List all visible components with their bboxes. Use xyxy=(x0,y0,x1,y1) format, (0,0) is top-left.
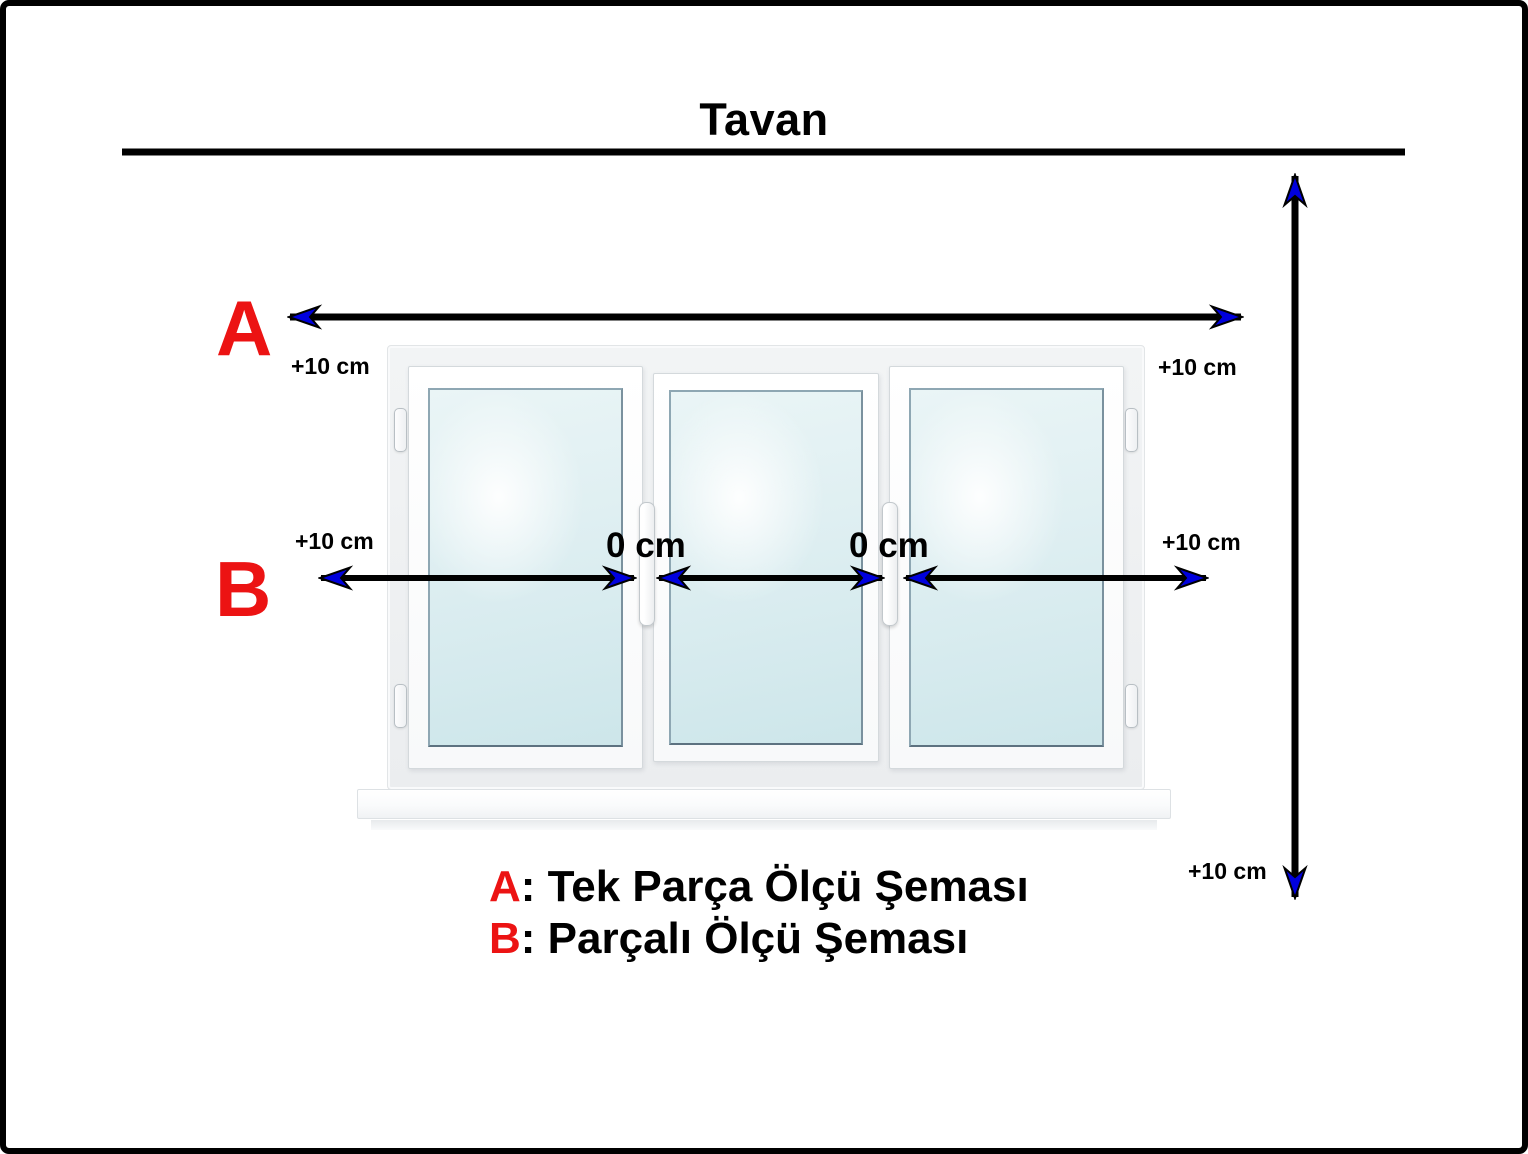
schema-b-label: B xyxy=(215,550,271,628)
offset-a-left: +10 cm xyxy=(291,355,370,378)
measurement-diagram: Tavan xyxy=(0,0,1528,1154)
offset-a-right: +10 cm xyxy=(1158,356,1237,379)
offset-b-right: +10 cm xyxy=(1162,531,1241,554)
legend-key-a: A xyxy=(489,862,521,911)
offset-b-left: +10 cm xyxy=(295,530,374,553)
legend-text-b: : Parçalı Ölçü Şeması xyxy=(521,914,969,963)
offset-height-bottom: +10 cm xyxy=(1188,860,1267,883)
legend-item-b: B: Parçalı Ölçü Şeması xyxy=(489,913,1029,965)
joint-zero-left: 0 cm xyxy=(606,528,686,563)
legend-key-b: B xyxy=(489,914,521,963)
legend-text-a: : Tek Parça Ölçü Şeması xyxy=(521,862,1029,911)
legend: A: Tek Parça Ölçü Şeması B: Parçalı Ölçü… xyxy=(489,861,1029,965)
schema-a-label: A xyxy=(216,289,272,367)
ceiling-title: Tavan xyxy=(0,94,1528,146)
legend-item-a: A: Tek Parça Ölçü Şeması xyxy=(489,861,1029,913)
joint-zero-right: 0 cm xyxy=(849,528,929,563)
